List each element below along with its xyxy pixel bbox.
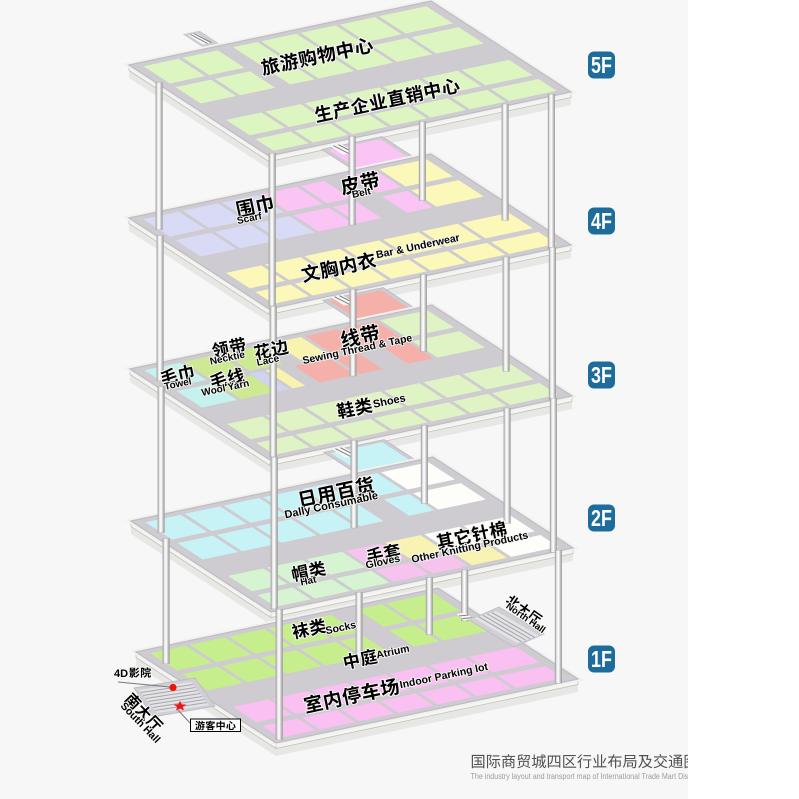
svg-text:5F: 5F (591, 53, 612, 79)
svg-text:2F: 2F (591, 506, 612, 532)
svg-text:4D: 4D (114, 668, 128, 680)
svg-text:3F: 3F (591, 363, 612, 389)
svg-text:The industry layout and transp: The industry layout and transport map of… (471, 772, 717, 781)
svg-text:4F: 4F (591, 209, 612, 235)
svg-text:1F: 1F (591, 647, 612, 673)
